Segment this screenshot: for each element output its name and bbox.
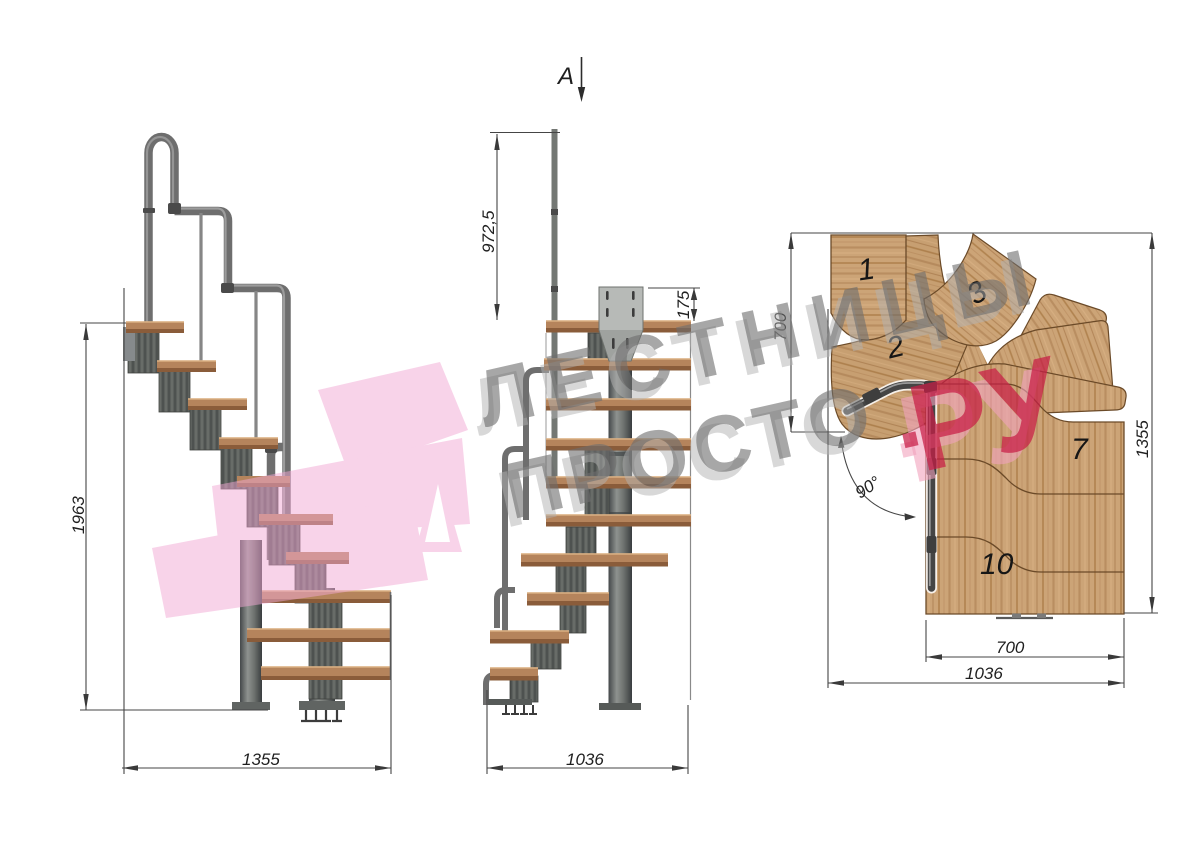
svg-text:1036: 1036 xyxy=(965,664,1003,683)
svg-text:90°: 90° xyxy=(852,472,884,502)
svg-text:10: 10 xyxy=(980,548,1014,581)
svg-text:A: A xyxy=(556,63,574,90)
svg-text:7: 7 xyxy=(1071,433,1089,466)
svg-text:1963: 1963 xyxy=(69,496,88,534)
svg-text:1036: 1036 xyxy=(566,750,604,769)
svg-text:1355: 1355 xyxy=(1133,420,1152,458)
svg-text:1355: 1355 xyxy=(242,750,280,769)
svg-text:972,5: 972,5 xyxy=(479,210,498,253)
svg-text:700: 700 xyxy=(996,638,1025,657)
